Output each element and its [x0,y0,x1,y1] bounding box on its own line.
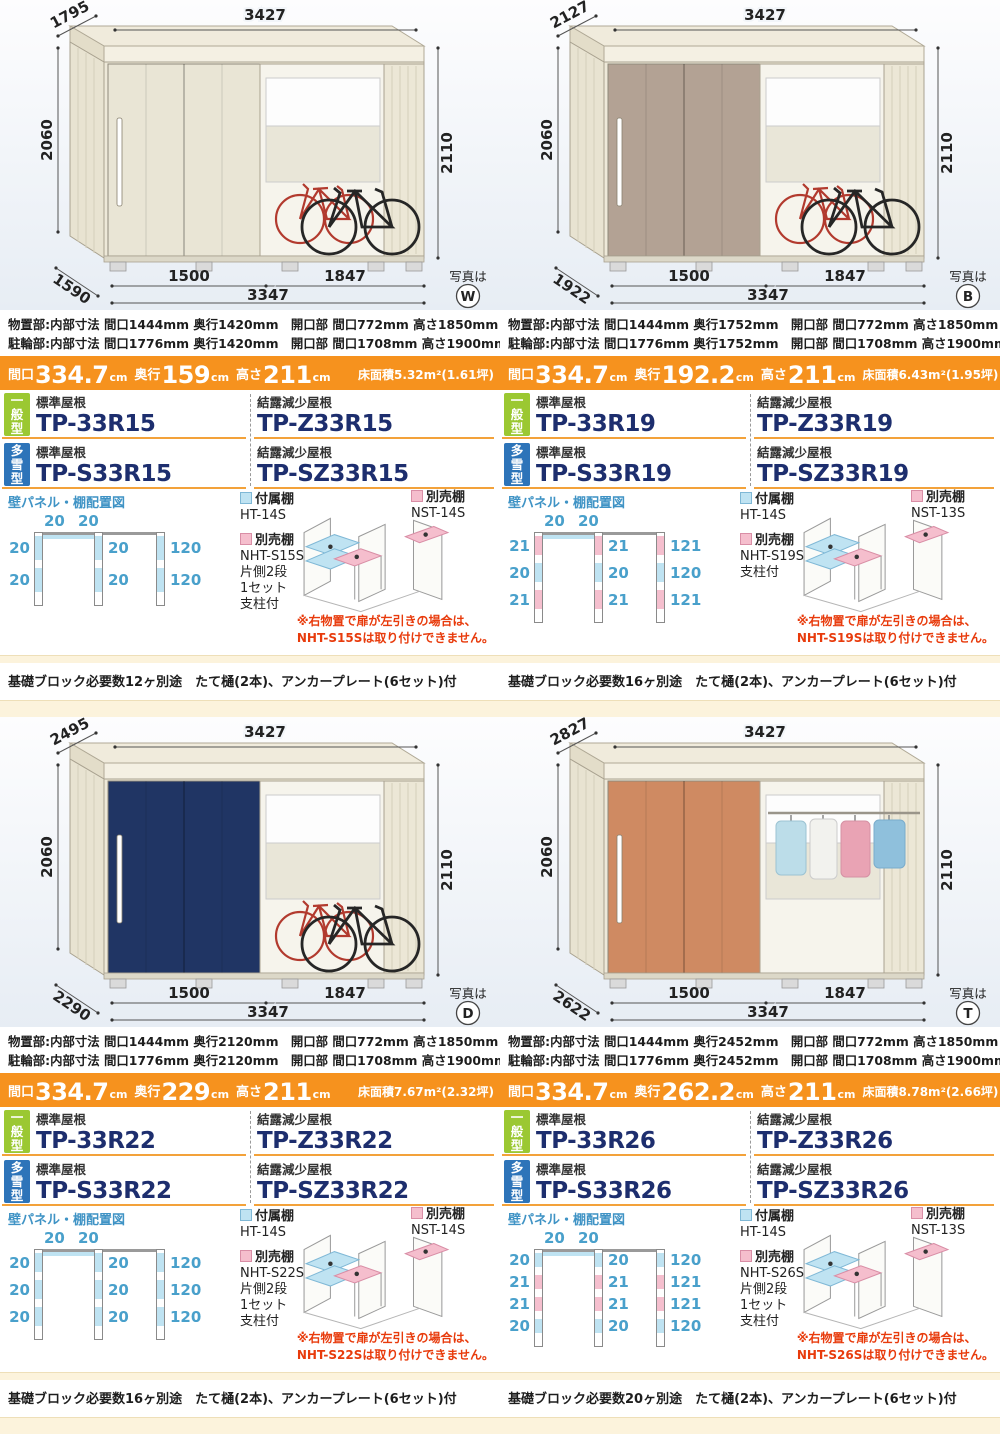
internal-dimensions-spec: 物置部:内部寸法 間口1444mm 奥行2452mm 開口部 間口772mm 高… [500,1027,1000,1073]
dg-seg [595,536,602,555]
attached-shelf-text: 付属棚 [255,1209,294,1224]
spec-line-bicycle: 駐輪部:内部寸法 間口1776mm 奥行2120mm 開口部 間口1708mm … [8,1051,496,1070]
width-label: 間口 [8,364,34,387]
dg-num: 121 [670,1273,701,1291]
foundation-note: 基礎ブロック必要数12ヶ別途 たて樋(2本)、アンカープレート(6セット)付 [0,663,500,700]
blue-swatch-icon [740,492,752,504]
model-cell-dew-roof: 結露減少屋根 TP-Z33R15 [257,392,492,438]
dg-seg [535,1297,542,1311]
depth-value: 262.2 [660,1080,735,1104]
nst-shelf-label: 別売棚 [411,1207,495,1223]
model-cell-dew-roof: 結露減少屋根 TP-SZ33R26 [757,1159,992,1205]
model-number: TP-Z33R19 [757,411,992,438]
shed-illustration: 2495 3427 2060 2110 2290 1500 1847 3347 … [0,717,500,1027]
dg-seg [657,590,664,609]
nst-shelf-model: NST-14S [411,506,495,522]
shed-drawing [570,26,924,271]
nst-shelf-text: 別売棚 [426,1207,465,1222]
model-cell-dew-roof: 結露減少屋根 TP-Z33R26 [757,1109,992,1155]
nst-shelf-text: 別売棚 [426,490,465,505]
roof-type-label: 結露減少屋根 [757,442,992,461]
blue-swatch-icon [740,1209,752,1221]
orange-underline [754,1204,994,1206]
nst-shelf-label: 別売棚 [911,490,995,506]
roof-type-label: 標準屋根 [36,442,246,461]
dg-seg [157,536,164,560]
foundation-note-text: 基礎ブロック必要数16ヶ別途 たて樋(2本)、アンカープレート(6セット)付 [508,675,957,690]
dim-height-left: 2060 [38,836,56,878]
width-label: 間口 [8,1081,34,1104]
column-divider [750,1111,751,1203]
pink-swatch-icon [240,533,252,545]
spec-line-bicycle: 駐輪部:内部寸法 間口1776mm 奥行1420mm 開口部 間口1708mm … [8,334,496,353]
wall-panel-diagram: 202020202020120120 [8,512,208,652]
shed-drawing [70,26,424,271]
model-number: TP-33R26 [536,1128,746,1155]
type-badge-snow-label: 多雪型 [510,444,524,486]
height-unit: cm [313,371,331,387]
dg-post [534,1249,543,1347]
type-badge-general-label: 一般型 [510,1111,524,1153]
height-label: 高さ [236,364,262,387]
type-badge-snow-label: 多雪型 [510,1161,524,1203]
dg-num: 21 [608,537,629,555]
dim-height-left: 2060 [538,119,556,161]
dg-num: 21 [608,1273,629,1291]
orange-underline [254,437,494,439]
wall-panel-section: 壁パネル・棚配置図 2020212021212021121120121 付属棚 … [500,490,1000,655]
dg-post [156,1249,165,1340]
height-value: 211 [787,1080,838,1104]
nst-shelf-text: 別売棚 [926,490,965,505]
dg-num: 21 [508,591,530,609]
optional-shelf-text: 別売棚 [255,533,294,548]
height-label: 高さ [236,1081,262,1104]
internal-dimensions-spec: 物置部:内部寸法 間口1444mm 奥行1752mm 開口部 間口772mm 高… [500,310,1000,356]
shed-drawing [70,743,424,988]
pink-swatch-icon [740,533,752,545]
foundation-note-text: 基礎ブロック必要数16ヶ別途 たて樋(2本)、アンカープレート(6セット)付 [8,1392,457,1407]
foundation-note-text: 基礎ブロック必要数20ヶ別途 たて樋(2本)、アンカープレート(6セット)付 [508,1392,957,1407]
separator-band [0,655,500,663]
type-badge-general: 一般型 [4,1110,30,1153]
model-number: TP-Z33R15 [257,411,492,438]
height-unit: cm [313,1088,331,1104]
type-badge-general-label: 一般型 [10,394,24,436]
photo-label: 写真は [449,269,487,284]
orange-underline [754,437,994,439]
dg-num: 21 [508,1273,530,1291]
type-badge-snow: 多雪型 [4,1160,30,1203]
dim-bay2: 1847 [824,267,866,285]
dg-topnum: 20 [78,1229,99,1247]
shed-illustration: 2127 3427 2060 2110 1922 1500 1847 3347 … [500,0,1000,310]
list-line: ※右物置で扉が左引きの場合は、 [297,613,494,630]
depth-unit: cm [736,371,754,387]
attached-shelf-text: 付属棚 [755,492,794,507]
foundation-note: 基礎ブロック必要数16ヶ別途 たて樋(2本)、アンカープレート(6セット)付 [0,1380,500,1417]
floor-area: 床面積6.43m²(1.95坪) [862,366,998,387]
type-badge-general-label: 一般型 [10,1111,24,1153]
type-badge-snow-label: 多雪型 [10,1161,24,1203]
bottom-band [0,700,500,717]
spec-line-bicycle: 駐輪部:内部寸法 間口1776mm 奥行1752mm 開口部 間口1708mm … [508,334,996,353]
photo-letter: D [462,1006,473,1022]
dg-seg [595,1297,602,1311]
dg-seg [657,1253,664,1267]
dg-num: 21 [608,591,629,609]
model-cell-standard-roof: 標準屋根 TP-33R22 [36,1109,246,1155]
dg-num: 121 [670,1295,701,1313]
dg-beamshelf [43,1252,94,1256]
roof-type-label: 標準屋根 [36,1109,246,1128]
model-cell-standard-roof: 標準屋根 TP-S33R15 [36,442,246,488]
model-number: TP-S33R22 [36,1178,246,1205]
model-number: TP-SZ33R26 [757,1178,992,1205]
dg-num: 20 [108,1308,129,1326]
dg-post [534,532,543,623]
width-value: 334.7 [34,363,109,387]
model-cell-standard-roof: 標準屋根 TP-33R19 [536,392,746,438]
blue-swatch-icon [240,492,252,504]
width-value: 334.7 [34,1080,109,1104]
dg-seg [657,536,664,555]
list-line: ※右物置で扉が左引きの場合は、 [297,1330,494,1347]
shed-illustration: 2827 3427 2060 2110 2622 1500 1847 3347 … [500,717,1000,1027]
wall-panel-diagram: 2020202020202020120120120 [8,1229,208,1369]
model-number: TP-S33R19 [536,461,746,488]
bottom-band [0,1417,500,1434]
panel-layout-title: 壁パネル・棚配置図 [508,492,625,511]
dg-num: 20 [608,1251,629,1269]
dg-seg [595,590,602,609]
orange-underline [254,1154,494,1156]
photo-label: 写真は [949,269,987,284]
type-badge-general: 一般型 [504,1110,530,1153]
dim-base-width: 3347 [747,286,789,304]
pink-swatch-icon [411,1207,423,1219]
model-cell-standard-roof: 標準屋根 TP-33R15 [36,392,246,438]
dg-num: 120 [170,1254,201,1272]
dg-topnum: 20 [578,512,599,530]
model-cell-dew-roof: 結露減少屋根 TP-SZ33R15 [257,442,492,488]
internal-dimensions-spec: 物置部:内部寸法 間口1444mm 奥行2120mm 開口部 間口772mm 高… [0,1027,500,1073]
roof-type-label: 標準屋根 [536,1109,746,1128]
type-badge-general: 一般型 [504,393,530,436]
dg-seg [657,1297,664,1311]
product-grid: 1795 3427 2060 2110 1590 1500 1847 3347 … [0,0,1000,1434]
dg-beamshelf [43,535,94,539]
dg-seg [657,1319,664,1333]
wall-panel-diagram: 2020212021212021121120121 [508,512,708,652]
dg-seg [157,1253,164,1272]
dg-num: 20 [508,1317,530,1335]
nst-shelf-text: 別売棚 [926,1207,965,1222]
roof-type-label: 結露減少屋根 [757,1159,992,1178]
roof-type-label: 結露減少屋根 [257,392,492,411]
separator-band [500,655,1000,663]
dg-num: 21 [608,1295,629,1313]
dg-num: 21 [508,1295,530,1313]
photo-letter: T [963,1006,973,1022]
dg-num: 121 [670,537,701,555]
orange-underline [254,487,494,489]
optional-nst-shelf: 別売棚 NST-13S [911,490,995,531]
pink-swatch-icon [240,1250,252,1262]
wall-panel-section: 壁パネル・棚配置図 2020202020202020120120120 付属棚 … [0,1207,500,1372]
dg-num: 20 [8,1308,30,1326]
dg-seg [35,536,42,560]
type-badge-snow: 多雪型 [504,443,530,486]
product-card: 2827 3427 2060 2110 2622 1500 1847 3347 … [500,717,1000,1434]
panel-layout-title: 壁パネル・棚配置図 [8,492,125,511]
nst-shelf-model: NST-13S [911,1223,995,1239]
model-table: 一般型 標準屋根 TP-33R26 結露減少屋根 TP-Z33R26 多雪型 標… [500,1107,1000,1207]
roof-type-label: 標準屋根 [536,1159,746,1178]
height-value: 211 [262,363,313,387]
dg-beamshelf [543,1252,594,1256]
type-badge-snow: 多雪型 [4,443,30,486]
spec-line-storage: 物置部:内部寸法 間口1444mm 奥行1420mm 開口部 間口772mm 高… [8,315,496,334]
dg-seg [35,568,42,592]
dg-num: 20 [108,571,129,589]
dg-num: 20 [108,1254,129,1272]
list-line: NHT-S22Sは取り付けできません。 [297,1347,494,1364]
depth-value: 159 [160,363,211,387]
door-handle [117,118,122,206]
list-line: ※右物置で扉が左引きの場合は、 [797,613,994,630]
model-cell-standard-roof: 標準屋根 TP-S33R22 [36,1159,246,1205]
left-sliding-warning: ※右物置で扉が左引きの場合は、NHT-S26Sは取り付けできません。 [797,1330,994,1364]
depth-value: 229 [160,1080,211,1104]
model-number: TP-33R19 [536,411,746,438]
model-cell-standard-roof: 標準屋根 TP-S33R26 [536,1159,746,1205]
dg-seg [535,1319,542,1333]
orange-underline [502,437,746,439]
dim-base-width: 3347 [747,1003,789,1021]
dim-bay2: 1847 [324,267,366,285]
model-number: TP-Z33R26 [757,1128,992,1155]
left-sliding-warning: ※右物置で扉が左引きの場合は、NHT-S22Sは取り付けできません。 [297,1330,494,1364]
dg-num: 120 [670,1251,701,1269]
separator-band [500,1372,1000,1380]
orange-underline [2,487,246,489]
dg-seg [535,590,542,609]
dg-seg [95,1280,102,1299]
dg-num: 120 [170,1281,201,1299]
dg-seg [35,1253,42,1272]
dg-beamshelf [543,535,594,539]
optional-nst-shelf: 別売棚 NST-14S [411,1207,495,1248]
photo-letter: B [963,289,973,305]
dg-post [594,532,603,623]
dg-topnum: 20 [544,1229,565,1247]
door-handle [117,835,122,923]
column-divider [750,394,751,486]
orange-underline [502,487,746,489]
attached-shelf-text: 付属棚 [755,1209,794,1224]
dg-num: 20 [8,571,30,589]
foundation-note-text: 基礎ブロック必要数12ヶ別途 たて樋(2本)、アンカープレート(6セット)付 [8,675,457,690]
dim-roof-width: 3427 [244,723,286,741]
model-number: TP-33R15 [36,411,246,438]
pink-swatch-icon [911,490,923,502]
dim-bay1: 1500 [168,984,210,1002]
floor-area: 床面積8.78m²(2.66坪) [862,1083,998,1104]
bottom-band [500,1417,1000,1434]
dim-bay1: 1500 [168,267,210,285]
dg-seg [535,1275,542,1289]
dg-post [34,532,43,606]
column-divider [250,394,251,486]
door-handle [617,118,622,206]
model-number: TP-SZ33R15 [257,461,492,488]
width-unit: cm [109,371,127,387]
blue-swatch-icon [240,1209,252,1221]
height-unit: cm [837,1088,855,1104]
dg-seg [595,563,602,582]
depth-unit: cm [211,1088,229,1104]
height-value: 211 [262,1080,313,1104]
dg-topnum: 20 [578,1229,599,1247]
dimension-banner: 間口 334.7 cm 奥行 262.2 cm 高さ 211 cm 床面積8.7… [500,1073,1000,1107]
roof-type-label: 標準屋根 [536,442,746,461]
floor-area: 床面積7.67m²(2.32坪) [358,1083,494,1104]
model-number: TP-Z33R22 [257,1128,492,1155]
product-card: 1795 3427 2060 2110 1590 1500 1847 3347 … [0,0,500,717]
dg-seg [95,1307,102,1326]
dg-seg [157,1280,164,1299]
width-label: 間口 [508,1081,534,1104]
dg-num: 121 [670,591,701,609]
left-sliding-warning: ※右物置で扉が左引きの場合は、NHT-S19Sは取り付けできません。 [797,613,994,647]
dg-num: 20 [8,1254,30,1272]
dg-seg [657,563,664,582]
dg-num: 20 [608,1317,629,1335]
dimension-banner: 間口 334.7 cm 奥行 229 cm 高さ 211 cm 床面積7.67m… [0,1073,500,1107]
dg-num: 20 [108,539,129,557]
dg-seg [95,536,102,560]
door-handle [617,835,622,923]
dg-post [94,1249,103,1340]
shed-drawing [570,743,924,988]
roof-type-label: 結露減少屋根 [757,1109,992,1128]
model-table: 一般型 標準屋根 TP-33R19 結露減少屋根 TP-Z33R19 多雪型 標… [500,390,1000,490]
dim-height-right: 2110 [438,132,456,174]
type-badge-general-label: 一般型 [510,394,524,436]
dg-post [656,532,665,623]
dim-height-left: 2060 [38,119,56,161]
nst-shelf-label: 別売棚 [411,490,495,506]
internal-dimensions-spec: 物置部:内部寸法 間口1444mm 奥行1420mm 開口部 間口772mm 高… [0,310,500,356]
model-table: 一般型 標準屋根 TP-33R22 結露減少屋根 TP-Z33R22 多雪型 標… [0,1107,500,1207]
wall-panel-diagram: 20202021212020212120120121121120 [508,1229,708,1369]
optional-shelf-text: 別売棚 [255,1250,294,1265]
height-unit: cm [837,371,855,387]
dg-topnum: 20 [44,1229,65,1247]
dim-bay2: 1847 [824,984,866,1002]
height-label: 高さ [761,1081,787,1104]
model-cell-dew-roof: 結露減少屋根 TP-SZ33R19 [757,442,992,488]
dg-num: 20 [108,1281,129,1299]
dimension-banner: 間口 334.7 cm 奥行 192.2 cm 高さ 211 cm 床面積6.4… [500,356,1000,390]
type-badge-snow: 多雪型 [504,1160,530,1203]
shed-illustration: 1795 3427 2060 2110 1590 1500 1847 3347 … [0,0,500,310]
dim-base-width: 3347 [247,1003,289,1021]
foundation-note: 基礎ブロック必要数16ヶ別途 たて樋(2本)、アンカープレート(6セット)付 [500,663,1000,700]
width-unit: cm [109,1088,127,1104]
spec-line-storage: 物置部:内部寸法 間口1444mm 奥行1752mm 開口部 間口772mm 高… [508,315,996,334]
model-table: 一般型 標準屋根 TP-33R15 結露減少屋根 TP-Z33R15 多雪型 標… [0,390,500,490]
depth-label: 奥行 [134,364,160,387]
roof-type-label: 標準屋根 [36,1159,246,1178]
roof-type-label: 標準屋根 [536,392,746,411]
model-number: TP-S33R15 [36,461,246,488]
dg-seg [595,1253,602,1267]
dg-seg [95,1253,102,1272]
width-label: 間口 [508,364,534,387]
orange-underline [2,437,246,439]
dg-seg [595,1319,602,1333]
bottom-band [500,700,1000,717]
dg-seg [535,1253,542,1267]
optional-shelf-text: 別売棚 [755,1250,794,1265]
width-value: 334.7 [534,363,609,387]
wall-panel-section: 壁パネル・棚配置図 202020212120202121201201211211… [500,1207,1000,1372]
list-line: NHT-S15Sは取り付けできません。 [297,630,494,647]
orange-underline [754,1154,994,1156]
width-value: 334.7 [534,1080,609,1104]
dim-roof-width: 3427 [744,6,786,24]
roof-type-label: 結露減少屋根 [257,1159,492,1178]
orange-underline [502,1154,746,1156]
dg-seg [35,1280,42,1299]
nst-shelf-model: NST-14S [411,1223,495,1239]
model-number: TP-SZ33R22 [257,1178,492,1205]
dg-num: 120 [170,571,201,589]
dg-seg [95,568,102,592]
dim-bay1: 1500 [668,267,710,285]
dim-bay1: 1500 [668,984,710,1002]
height-label: 高さ [761,364,787,387]
dg-post [34,1249,43,1340]
foundation-note: 基礎ブロック必要数20ヶ別途 たて樋(2本)、アンカープレート(6セット)付 [500,1380,1000,1417]
photo-label: 写真は [949,986,987,1001]
height-value: 211 [787,363,838,387]
dg-num: 120 [670,1317,701,1335]
product-card: 2127 3427 2060 2110 1922 1500 1847 3347 … [500,0,1000,717]
roof-type-label: 標準屋根 [36,392,246,411]
depth-unit: cm [211,371,229,387]
separator-band [0,1372,500,1380]
dim-height-right: 2110 [938,849,956,891]
roof-type-label: 結露減少屋根 [257,442,492,461]
spec-line-storage: 物置部:内部寸法 間口1444mm 奥行2452mm 開口部 間口772mm 高… [508,1032,996,1051]
product-card: 2495 3427 2060 2110 2290 1500 1847 3347 … [0,717,500,1434]
pink-swatch-icon [911,1207,923,1219]
dg-num: 20 [508,564,530,582]
dg-topnum: 20 [544,512,565,530]
dg-num: 20 [8,539,30,557]
type-badge-snow-label: 多雪型 [10,444,24,486]
depth-label: 奥行 [134,1081,160,1104]
depth-label: 奥行 [634,364,660,387]
depth-unit: cm [736,1088,754,1104]
orange-underline [502,1204,746,1206]
dimension-banner: 間口 334.7 cm 奥行 159 cm 高さ 211 cm 床面積5.32m… [0,356,500,390]
model-cell-standard-roof: 標準屋根 TP-S33R19 [536,442,746,488]
dg-num: 20 [8,1281,30,1299]
